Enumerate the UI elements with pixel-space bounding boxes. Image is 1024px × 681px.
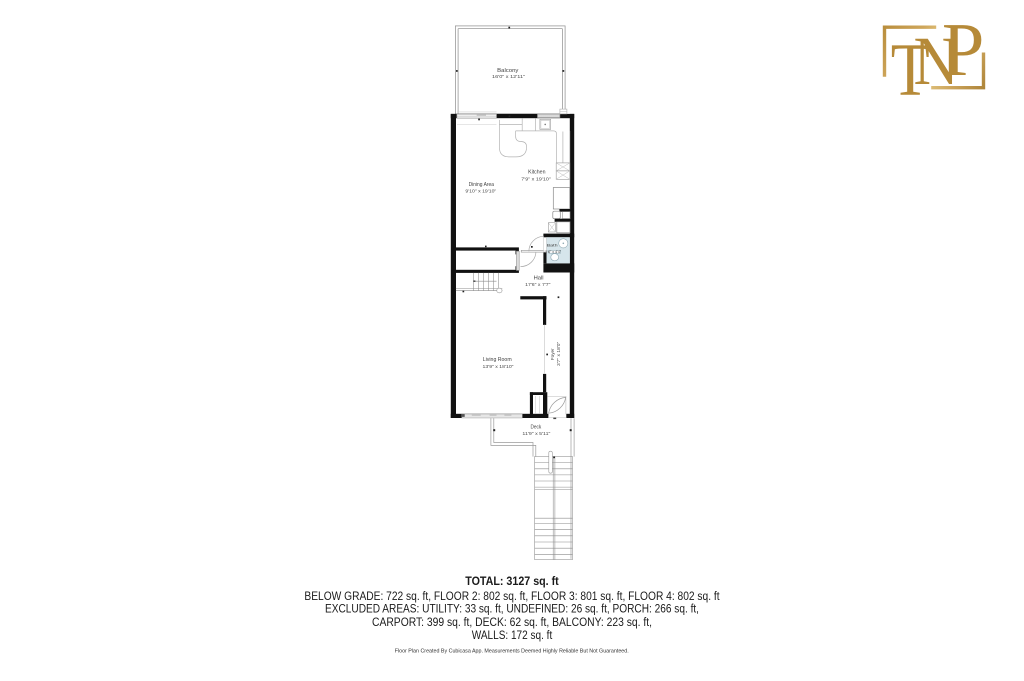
svg-text:13'9" x 18'10": 13'9" x 18'10" xyxy=(483,364,514,369)
svg-text:Deck: Deck xyxy=(531,425,542,431)
svg-text:Kitchen: Kitchen xyxy=(528,169,546,175)
svg-text:WALLS: 172 sq. ft: WALLS: 172 sq. ft xyxy=(472,628,553,642)
svg-text:P: P xyxy=(942,7,985,92)
svg-text:Dining Area: Dining Area xyxy=(469,182,495,188)
svg-text:7'9" x 19'10": 7'9" x 19'10" xyxy=(521,176,551,181)
svg-text:Bath: Bath xyxy=(547,244,558,248)
svg-text:3'7" x 18'0": 3'7" x 18'0" xyxy=(556,341,561,366)
svg-text:11'9" x 5'11": 11'9" x 5'11" xyxy=(522,431,550,436)
svg-text:9'10" x 19'10": 9'10" x 19'10" xyxy=(465,189,496,194)
svg-text:Living Room: Living Room xyxy=(483,357,512,363)
svg-text:16'0" x 12'11": 16'0" x 12'11" xyxy=(492,74,525,79)
svg-text:5'6" x 4'4": 5'6" x 4'4" xyxy=(545,250,562,254)
svg-text:EXCLUDED AREAS: UTILITY: 33 sq: EXCLUDED AREAS: UTILITY: 33 sq. ft, UNDE… xyxy=(325,602,699,616)
svg-text:Hall: Hall xyxy=(534,276,544,282)
svg-text:CARPORT: 399 sq. ft, DECK: 62: CARPORT: 399 sq. ft, DECK: 62 sq. ft, BA… xyxy=(372,615,652,629)
svg-text:TOTAL: 3127 sq. ft: TOTAL: 3127 sq. ft xyxy=(465,574,559,588)
svg-text:17'6" x 7'7": 17'6" x 7'7" xyxy=(525,282,551,287)
svg-text:Floor Plan Created By Cubicasa: Floor Plan Created By Cubicasa App. Meas… xyxy=(395,649,629,655)
svg-text:Foyer: Foyer xyxy=(550,348,555,360)
